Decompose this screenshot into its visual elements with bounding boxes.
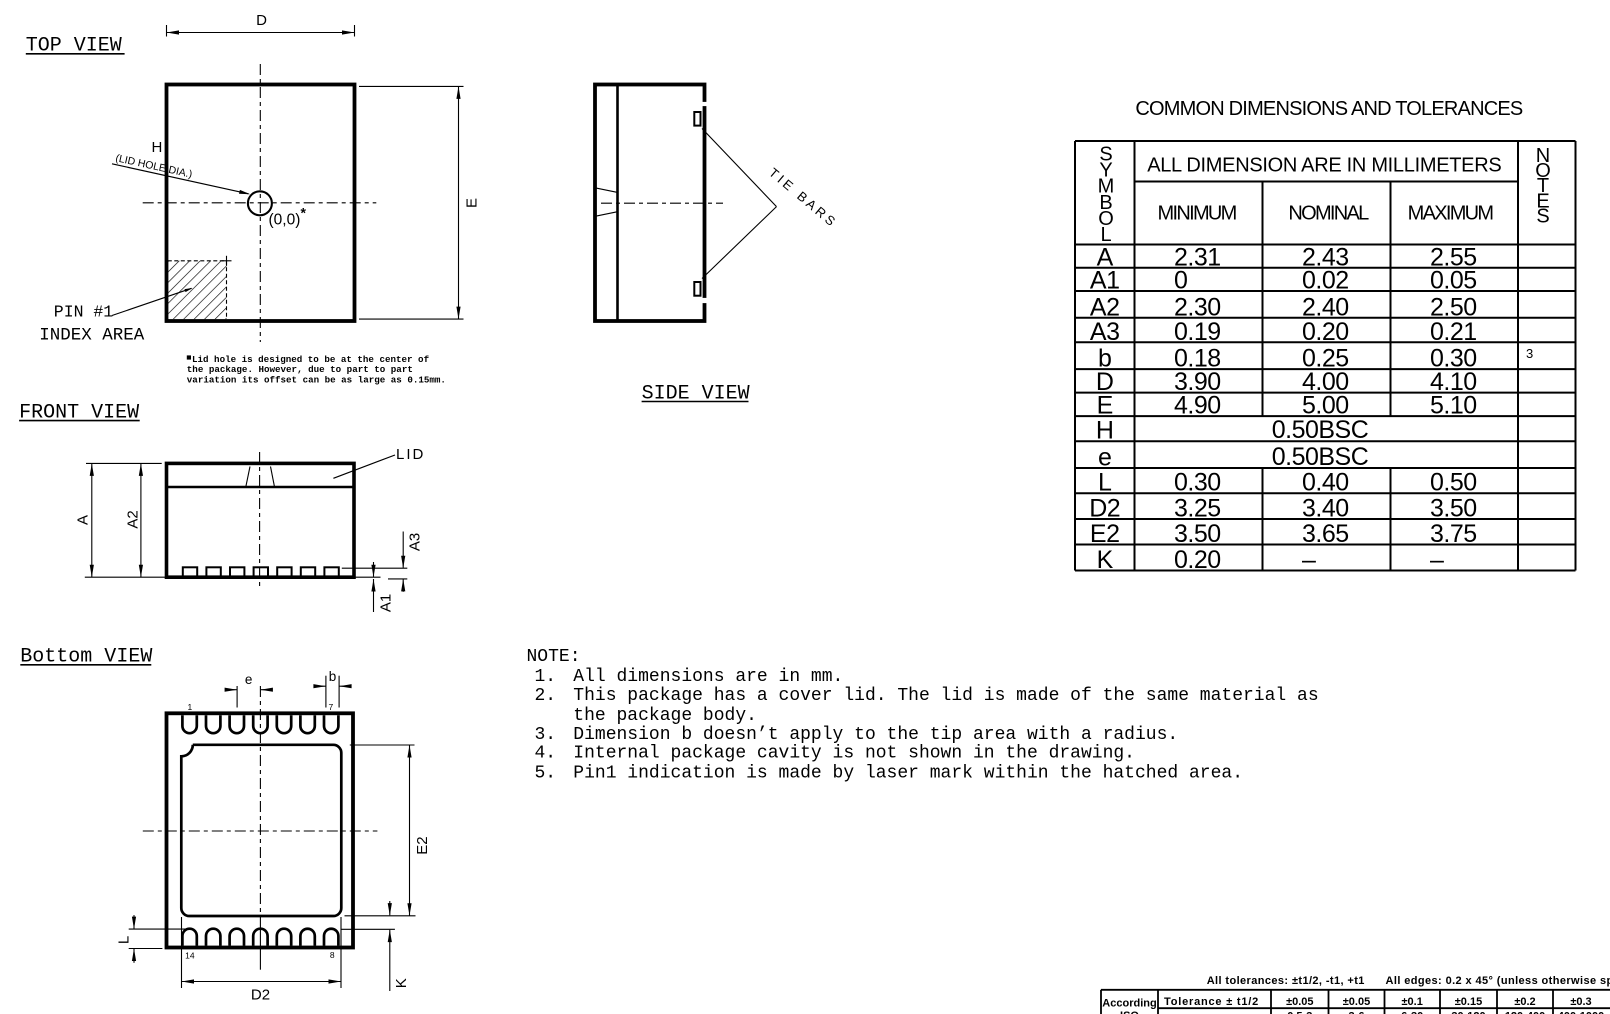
svg-text:3.50: 3.50 bbox=[1174, 520, 1221, 548]
svg-text:0.05: 0.05 bbox=[1430, 267, 1477, 295]
svg-text:ISO: ISO bbox=[1120, 1010, 1139, 1014]
svg-text:400-1000: 400-1000 bbox=[1558, 1011, 1605, 1014]
svg-text:E: E bbox=[1097, 392, 1113, 420]
svg-text:b: b bbox=[329, 669, 337, 684]
svg-text:3.25: 3.25 bbox=[1174, 495, 1221, 523]
svg-text:0.5-3: 0.5-3 bbox=[1287, 1011, 1312, 1014]
svg-text:L: L bbox=[116, 936, 133, 944]
svg-text:the package. However, due to p: the package. However, due to part to par… bbox=[187, 364, 413, 375]
svg-text:A3: A3 bbox=[1090, 318, 1120, 346]
svg-text:0.50BSC: 0.50BSC bbox=[1272, 416, 1369, 444]
svg-text:3.50: 3.50 bbox=[1430, 495, 1477, 523]
svg-text:–: – bbox=[1430, 546, 1444, 574]
svg-text:MAXIMUM: MAXIMUM bbox=[1408, 203, 1494, 225]
svg-text:0.30: 0.30 bbox=[1174, 469, 1221, 497]
svg-text:3: 3 bbox=[1526, 346, 1533, 361]
svg-text:K: K bbox=[1097, 546, 1114, 574]
svg-text:MINIMUM: MINIMUM bbox=[1158, 203, 1237, 225]
svg-text:±0.2: ±0.2 bbox=[1514, 996, 1535, 1008]
svg-text:(0,0): (0,0) bbox=[269, 211, 301, 228]
svg-text:Internal package cavity is not: Internal package cavity is not shown in … bbox=[573, 744, 1135, 764]
svg-text:0.20: 0.20 bbox=[1174, 546, 1221, 574]
svg-text:3.: 3. bbox=[535, 725, 557, 745]
svg-text:5.: 5. bbox=[535, 763, 557, 783]
svg-text:E2: E2 bbox=[1090, 520, 1120, 548]
svg-text:14: 14 bbox=[185, 950, 195, 960]
svg-text:2.: 2. bbox=[535, 686, 557, 706]
svg-text:–: – bbox=[1302, 546, 1316, 574]
svg-text:±0.15: ±0.15 bbox=[1455, 996, 1482, 1008]
svg-text:8: 8 bbox=[330, 950, 335, 960]
svg-text:0.19: 0.19 bbox=[1174, 318, 1221, 346]
svg-text:D2: D2 bbox=[1089, 495, 1120, 523]
svg-text:K: K bbox=[393, 978, 410, 988]
svg-text:LID: LID bbox=[396, 446, 425, 463]
svg-text:A1: A1 bbox=[377, 594, 394, 612]
svg-text:the package body.: the package body. bbox=[573, 706, 757, 726]
svg-text:L: L bbox=[1098, 469, 1112, 497]
svg-text:±0.05: ±0.05 bbox=[1286, 996, 1313, 1008]
svg-text:3-6: 3-6 bbox=[1349, 1011, 1365, 1014]
svg-text:0.50: 0.50 bbox=[1430, 469, 1477, 497]
svg-text:7: 7 bbox=[329, 702, 334, 712]
svg-text:0.50BSC: 0.50BSC bbox=[1272, 443, 1369, 471]
svg-text:variation its offset can be as: variation its offset can be as large as … bbox=[187, 374, 446, 385]
svg-text:A2: A2 bbox=[124, 510, 141, 528]
svg-text:H: H bbox=[1096, 417, 1114, 445]
svg-text:All tolerances: ±t1/2, -t1, +t: All tolerances: ±t1/2, -t1, +t1 All edge… bbox=[1207, 975, 1610, 987]
svg-text:D: D bbox=[256, 12, 267, 29]
svg-text:±0.05: ±0.05 bbox=[1343, 996, 1370, 1008]
svg-text:0.21: 0.21 bbox=[1430, 318, 1477, 346]
svg-text:INDEX AREA: INDEX AREA bbox=[39, 325, 145, 345]
svg-text:1.: 1. bbox=[535, 667, 557, 687]
svg-text:0.20: 0.20 bbox=[1302, 318, 1349, 346]
svg-text:3.65: 3.65 bbox=[1302, 520, 1349, 548]
svg-text:E: E bbox=[464, 198, 481, 208]
svg-text:All dimensions are in mm.: All dimensions are in mm. bbox=[573, 667, 843, 687]
svg-text:A3: A3 bbox=[407, 533, 424, 551]
svg-text:3.75: 3.75 bbox=[1430, 520, 1477, 548]
svg-text:NOMINAL: NOMINAL bbox=[1288, 203, 1369, 225]
svg-text:E2: E2 bbox=[414, 836, 431, 854]
svg-text:D2: D2 bbox=[251, 986, 270, 1003]
svg-text:±0.3: ±0.3 bbox=[1570, 996, 1591, 1008]
svg-text:±0.1: ±0.1 bbox=[1402, 996, 1423, 1008]
svg-text:0.02: 0.02 bbox=[1302, 267, 1349, 295]
svg-text:e: e bbox=[245, 672, 253, 687]
svg-text:S: S bbox=[1536, 205, 1549, 227]
svg-text:PIN #1: PIN #1 bbox=[54, 303, 114, 322]
svg-text:e: e bbox=[1098, 444, 1111, 472]
svg-text:0: 0 bbox=[1174, 267, 1187, 295]
svg-text:A: A bbox=[75, 515, 92, 525]
svg-text:*: * bbox=[301, 205, 307, 221]
svg-text:Dimension b doesn’t apply to t: Dimension b doesn’t apply to the tip are… bbox=[573, 725, 1178, 745]
svg-text:—: — bbox=[1235, 1011, 1246, 1014]
svg-text:5.10: 5.10 bbox=[1430, 392, 1477, 420]
svg-text:ALL DIMENSION ARE IN MILLIMETE: ALL DIMENSION ARE IN MILLIMETERS bbox=[1147, 155, 1501, 177]
svg-text:6-30: 6-30 bbox=[1401, 1011, 1423, 1014]
svg-text:A1: A1 bbox=[1090, 267, 1120, 295]
svg-text:COMMON DIMENSIONS AND TOLERANC: COMMON DIMENSIONS AND TOLERANCES bbox=[1135, 98, 1523, 120]
svg-text:This package has a cover lid.: This package has a cover lid. The lid is… bbox=[573, 686, 1318, 706]
svg-text:4.90: 4.90 bbox=[1174, 392, 1221, 420]
svg-text:Pin1 indication is made by las: Pin1 indication is made by laser mark wi… bbox=[573, 763, 1243, 783]
svg-text:30-120: 30-120 bbox=[1451, 1011, 1485, 1014]
svg-text:3.40: 3.40 bbox=[1302, 495, 1349, 523]
svg-text:According: According bbox=[1102, 998, 1156, 1010]
svg-text:Tolerance ± t1/2: Tolerance ± t1/2 bbox=[1164, 996, 1259, 1008]
svg-text:H: H bbox=[152, 139, 163, 156]
svg-text:NOTE:: NOTE: bbox=[527, 647, 581, 667]
svg-text:4.: 4. bbox=[535, 744, 557, 764]
svg-text:120-400: 120-400 bbox=[1505, 1011, 1545, 1014]
svg-text:0.40: 0.40 bbox=[1302, 469, 1349, 497]
svg-text:1: 1 bbox=[188, 702, 193, 712]
